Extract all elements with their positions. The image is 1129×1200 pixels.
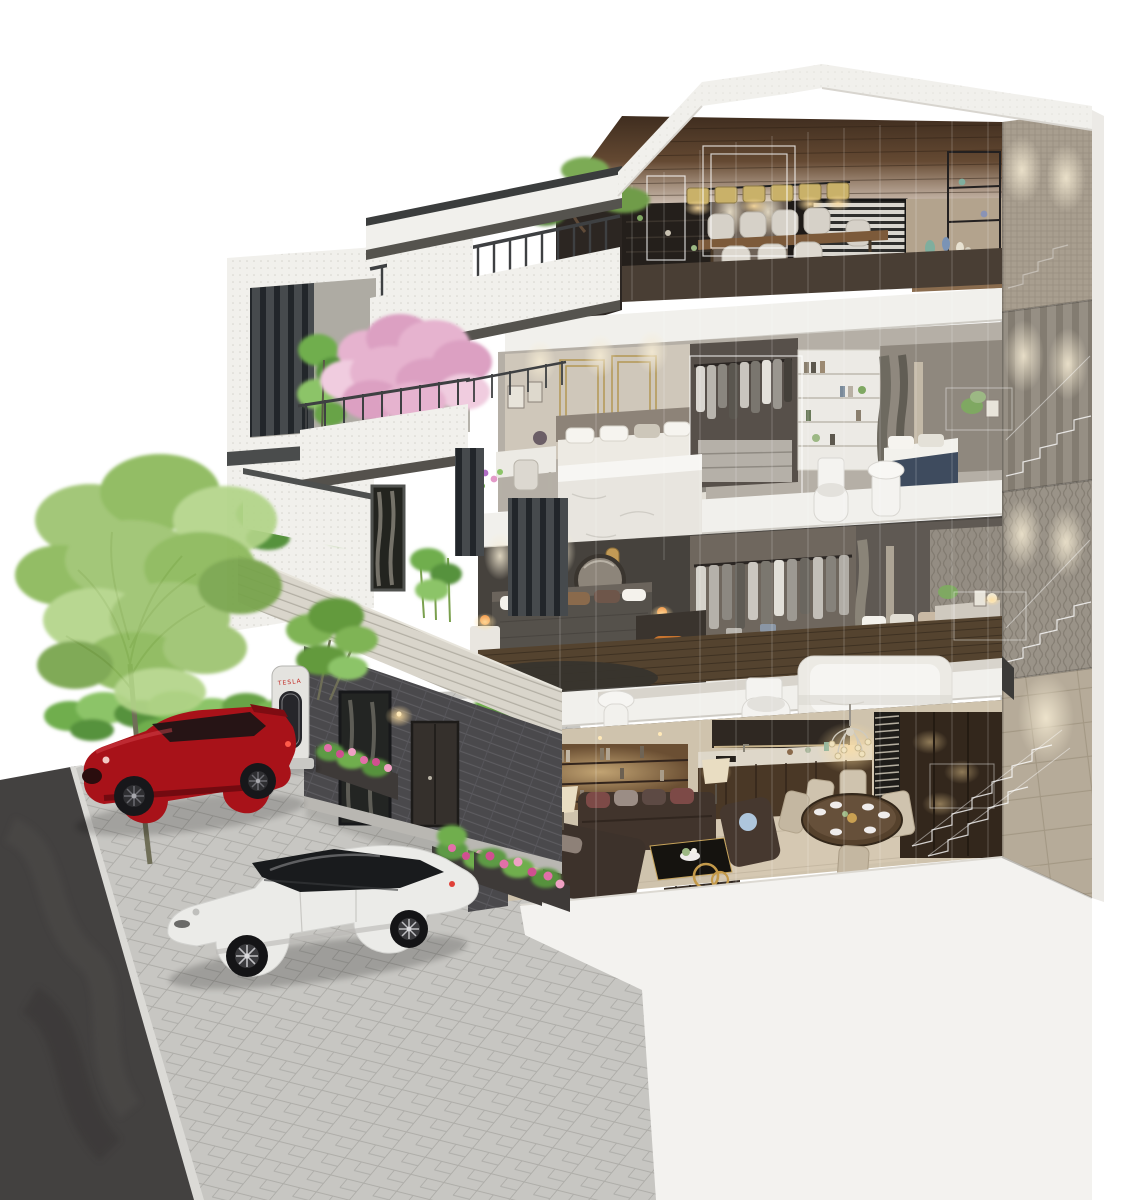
window-floor2 xyxy=(372,486,404,590)
right-interior-wall xyxy=(1002,110,1104,902)
wash-basin-floor3 xyxy=(868,461,904,516)
stair-niche xyxy=(900,712,1002,858)
sedan-rear-wheel xyxy=(390,910,428,948)
toilet-floor3 xyxy=(814,458,848,522)
right-exterior-edge xyxy=(1092,110,1104,902)
suv-rear-wheel xyxy=(240,763,276,799)
bookshelf-unit xyxy=(798,350,880,470)
architectural-rendering: TESLA xyxy=(0,0,1129,1200)
louver-panel-small xyxy=(455,448,484,556)
entry-door xyxy=(412,722,458,826)
walk-in-wardrobe xyxy=(690,338,798,488)
sedan-front-wheel xyxy=(226,935,268,977)
louver-panel-large xyxy=(508,498,568,616)
coffee-table xyxy=(650,838,732,880)
suv-front-wheel xyxy=(114,776,154,816)
